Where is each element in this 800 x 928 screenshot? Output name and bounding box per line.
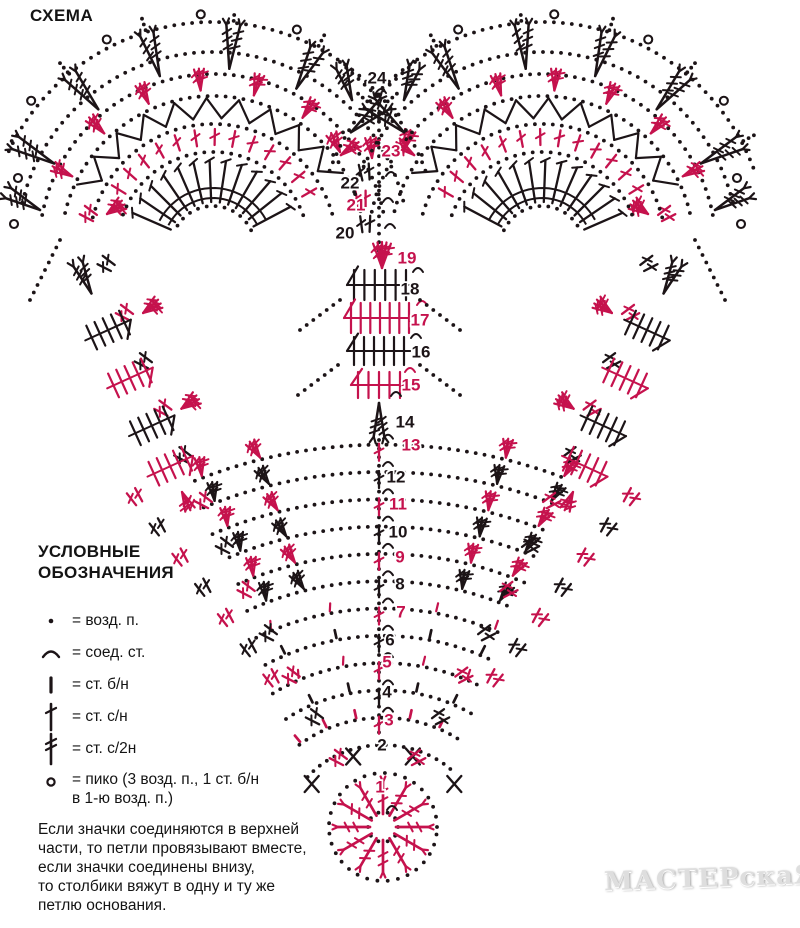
row-number-13: 13 — [402, 436, 421, 455]
row-number-12: 12 — [387, 468, 406, 487]
row-number-3: 3 — [384, 711, 393, 730]
row-number-9: 9 — [395, 548, 404, 567]
row-number-23: 23 — [382, 142, 401, 161]
row-number-2: 2 — [377, 736, 386, 755]
row-number-5: 5 — [382, 653, 391, 672]
instructions-note: Если значки соединяются в верхней части,… — [38, 820, 358, 915]
row-number-6: 6 — [385, 631, 394, 650]
row-number-24: 24 — [368, 69, 387, 88]
treble-crochet-icon — [38, 732, 64, 766]
row-number-4: 4 — [382, 683, 392, 702]
legend-item-dc: = ст. с/н — [38, 700, 128, 734]
row-number-20: 20 — [336, 224, 355, 243]
slip-stitch-icon — [38, 636, 64, 670]
legend-item-label: = ст. б/н — [72, 675, 129, 694]
row-number-21: 21 — [347, 196, 366, 215]
row-number-7: 7 — [396, 603, 405, 622]
row-number-19: 19 — [398, 249, 417, 268]
row-number-18: 18 — [401, 280, 420, 299]
legend-item-label: = возд. п. — [72, 611, 139, 630]
double-crochet-icon — [38, 700, 64, 734]
single-crochet-icon — [38, 668, 64, 702]
legend-item-slip: = соед. ст. — [38, 636, 145, 670]
legend-item-picot: = пико (3 возд. п., 1 ст. б/н в 1-ю возд… — [38, 770, 259, 809]
legend-heading: УСЛОВНЫЕ ОБОЗНАЧЕНИЯ — [38, 541, 174, 584]
row-number-10: 10 — [389, 523, 408, 542]
legend-item-label: = соед. ст. — [72, 643, 145, 662]
row-number-22: 22 — [341, 174, 360, 193]
row-number-15: 15 — [402, 376, 421, 395]
chain-dot-icon — [38, 604, 64, 638]
legend-item-tr: = ст. с/2н — [38, 732, 136, 766]
row-number-11: 11 — [389, 495, 407, 514]
legend-item-label: = ст. с/2н — [72, 739, 136, 758]
row-number-1: 1 — [375, 778, 384, 797]
legend-item-label: = пико (3 возд. п., 1 ст. б/н в 1-ю возд… — [72, 770, 259, 809]
legend-item-chain: = возд. п. — [38, 604, 139, 638]
legend-item-sc: = ст. б/н — [38, 668, 129, 702]
row-number-14: 14 — [396, 413, 415, 432]
picot-icon — [38, 770, 64, 804]
row-number-16: 16 — [412, 343, 431, 362]
row-number-8: 8 — [395, 575, 404, 594]
legend-item-label: = ст. с/н — [72, 707, 128, 726]
row-number-17: 17 — [411, 311, 430, 330]
